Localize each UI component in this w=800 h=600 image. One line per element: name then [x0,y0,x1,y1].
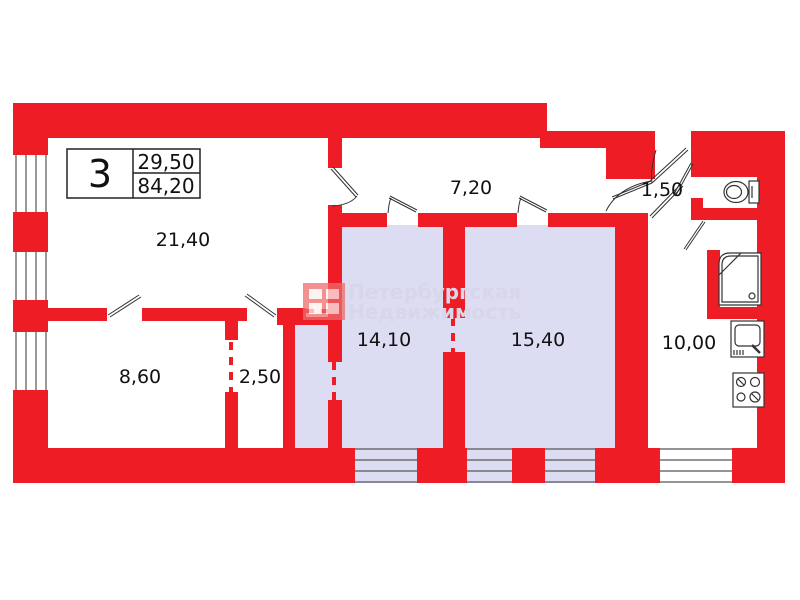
wall-closet-left-bot [225,392,238,448]
wall-hall-room14-a [328,213,387,227]
wall-shower-left [707,250,720,307]
door-shower [684,221,705,250]
wall-hall-room15 [548,213,615,227]
room-label-hallway: 7,20 [450,177,492,199]
window-bottom-1 [355,448,417,483]
door-entrance [650,148,688,183]
door-hallway-room14 [388,196,417,213]
wall-hall-room14-b [418,213,517,227]
wall-bottom-d [595,448,660,483]
stove-icon [733,373,764,407]
room-label-room15: 15,40 [511,329,565,351]
wall-living-room8-a [48,308,107,321]
window-bottom-2 [467,448,512,483]
wall-bottom-e [732,448,785,483]
wall-room14-room15-bot [443,352,465,448]
door-living-hallway [331,167,358,206]
wall-shower-bottom [707,307,785,319]
room-label-closet: 2,50 [239,366,281,388]
wall-top-main [13,103,547,138]
window-bottom-kitchen [660,448,732,483]
pn-logo-icon [303,283,345,320]
wall-wc-left-stub [691,198,703,220]
shower-icon [719,253,761,305]
wall-hall-entry-chunk [606,131,655,179]
watermark: Петербургская Недвижимость [303,280,521,324]
door-living-2 [245,294,276,317]
room-label-kitchen: 10,00 [662,332,716,354]
window-left-3 [13,332,48,390]
total-area-value: 84,20 [137,174,194,198]
corridor-fill [295,318,330,448]
wall-bottom-b [417,448,467,483]
window-left-2 [13,252,48,300]
window-bottom-3 [545,448,595,483]
wall-living-hall-top [328,138,342,168]
title-block: 3 29,50 84,20 [67,149,200,198]
room-label-living: 21,40 [156,229,210,251]
room-label-entry: 1,50 [641,179,683,201]
wall-left-pillar-3 [13,300,48,332]
wall-bottom-c [512,448,545,483]
living-area-value: 29,50 [137,150,194,174]
room-label-room8: 8,60 [119,366,161,388]
door-hallway-room15 [518,196,547,213]
door-living-1 [108,295,141,317]
wall-living-bot [328,400,342,448]
wall-left-pillar-1 [13,103,48,155]
room-label-room14: 14,10 [357,329,411,351]
toilet-icon [724,181,759,203]
wall-closet-left-top [225,308,238,340]
wall-bottom-a [13,448,355,483]
watermark-line2: Недвижимость [348,300,521,324]
wall-room15-kitchen [615,213,648,448]
sink-icon [731,321,764,357]
wall-left-pillar-2 [13,212,48,252]
floor-plan: 21,40 7,20 1,50 8,60 2,50 14,10 15,40 10… [0,0,800,600]
floor-plan-canvas: 21,40 7,20 1,50 8,60 2,50 14,10 15,40 10… [0,0,800,600]
apartment-number: 3 [88,152,112,196]
wall-corridor-left [283,308,295,448]
window-left-1 [13,155,48,212]
